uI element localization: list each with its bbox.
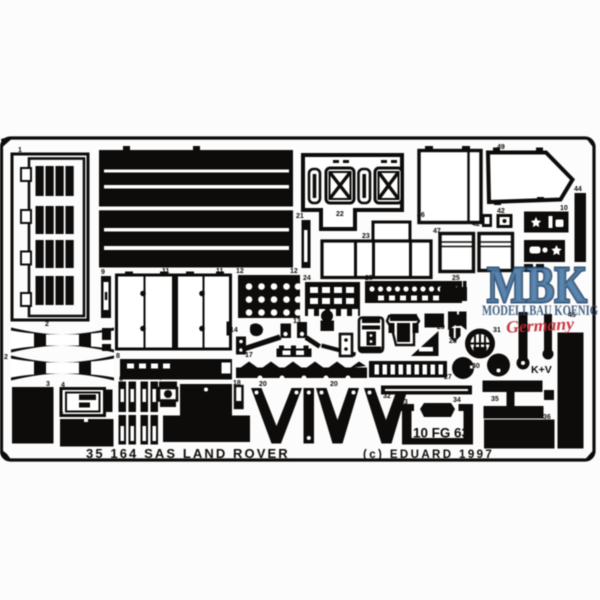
svg-text:23: 23: [362, 233, 370, 240]
svg-text:36: 36: [543, 414, 551, 421]
svg-text:4: 4: [61, 382, 65, 389]
svg-text:7: 7: [159, 375, 163, 382]
svg-text:42: 42: [472, 221, 480, 228]
svg-text:22: 22: [336, 211, 344, 218]
svg-text:6: 6: [119, 376, 123, 383]
svg-text:42: 42: [497, 208, 505, 215]
svg-text:44: 44: [574, 186, 582, 193]
svg-text:9: 9: [101, 269, 105, 276]
svg-text:12: 12: [236, 268, 244, 275]
svg-text:35: 35: [491, 396, 499, 403]
svg-text:3: 3: [46, 381, 50, 388]
svg-text:26: 26: [376, 347, 384, 354]
svg-text:K+V: K+V: [531, 364, 552, 376]
svg-text:12: 12: [290, 268, 298, 275]
svg-text:31: 31: [493, 327, 501, 334]
svg-text:27: 27: [444, 374, 452, 381]
svg-text:8: 8: [116, 353, 120, 360]
svg-text:2: 2: [45, 321, 49, 328]
svg-text:20: 20: [330, 381, 338, 388]
svg-text:46: 46: [417, 212, 425, 219]
svg-text:24: 24: [303, 275, 311, 282]
svg-text:5: 5: [60, 412, 64, 419]
svg-text:49: 49: [497, 144, 505, 151]
svg-text:29: 29: [437, 324, 445, 331]
svg-text:10 FG 63: 10 FG 63: [413, 425, 469, 441]
svg-text:14: 14: [230, 327, 238, 334]
svg-text:25: 25: [452, 275, 460, 282]
svg-text:11: 11: [162, 268, 170, 275]
svg-text:28: 28: [449, 338, 457, 345]
svg-text:18: 18: [233, 380, 241, 387]
svg-text:13: 13: [293, 318, 301, 325]
svg-text:30: 30: [472, 363, 480, 370]
svg-text:35 164 SAS LAND ROVER: 35 164 SAS LAND ROVER: [86, 446, 290, 461]
svg-text:47: 47: [433, 228, 441, 235]
svg-text:34: 34: [453, 397, 461, 404]
svg-text:32: 32: [383, 393, 391, 400]
svg-text:17: 17: [245, 352, 253, 359]
svg-text:11: 11: [216, 268, 224, 275]
svg-text:10: 10: [560, 205, 568, 212]
svg-text:33: 33: [400, 399, 408, 406]
svg-text:2: 2: [4, 354, 8, 361]
svg-text:(c) EDUARD 1997: (c) EDUARD 1997: [363, 449, 494, 461]
svg-text:25: 25: [365, 275, 373, 282]
svg-text:1: 1: [18, 147, 22, 154]
svg-text:21: 21: [296, 213, 304, 220]
svg-text:Germany: Germany: [506, 314, 575, 337]
svg-text:20: 20: [259, 381, 267, 388]
